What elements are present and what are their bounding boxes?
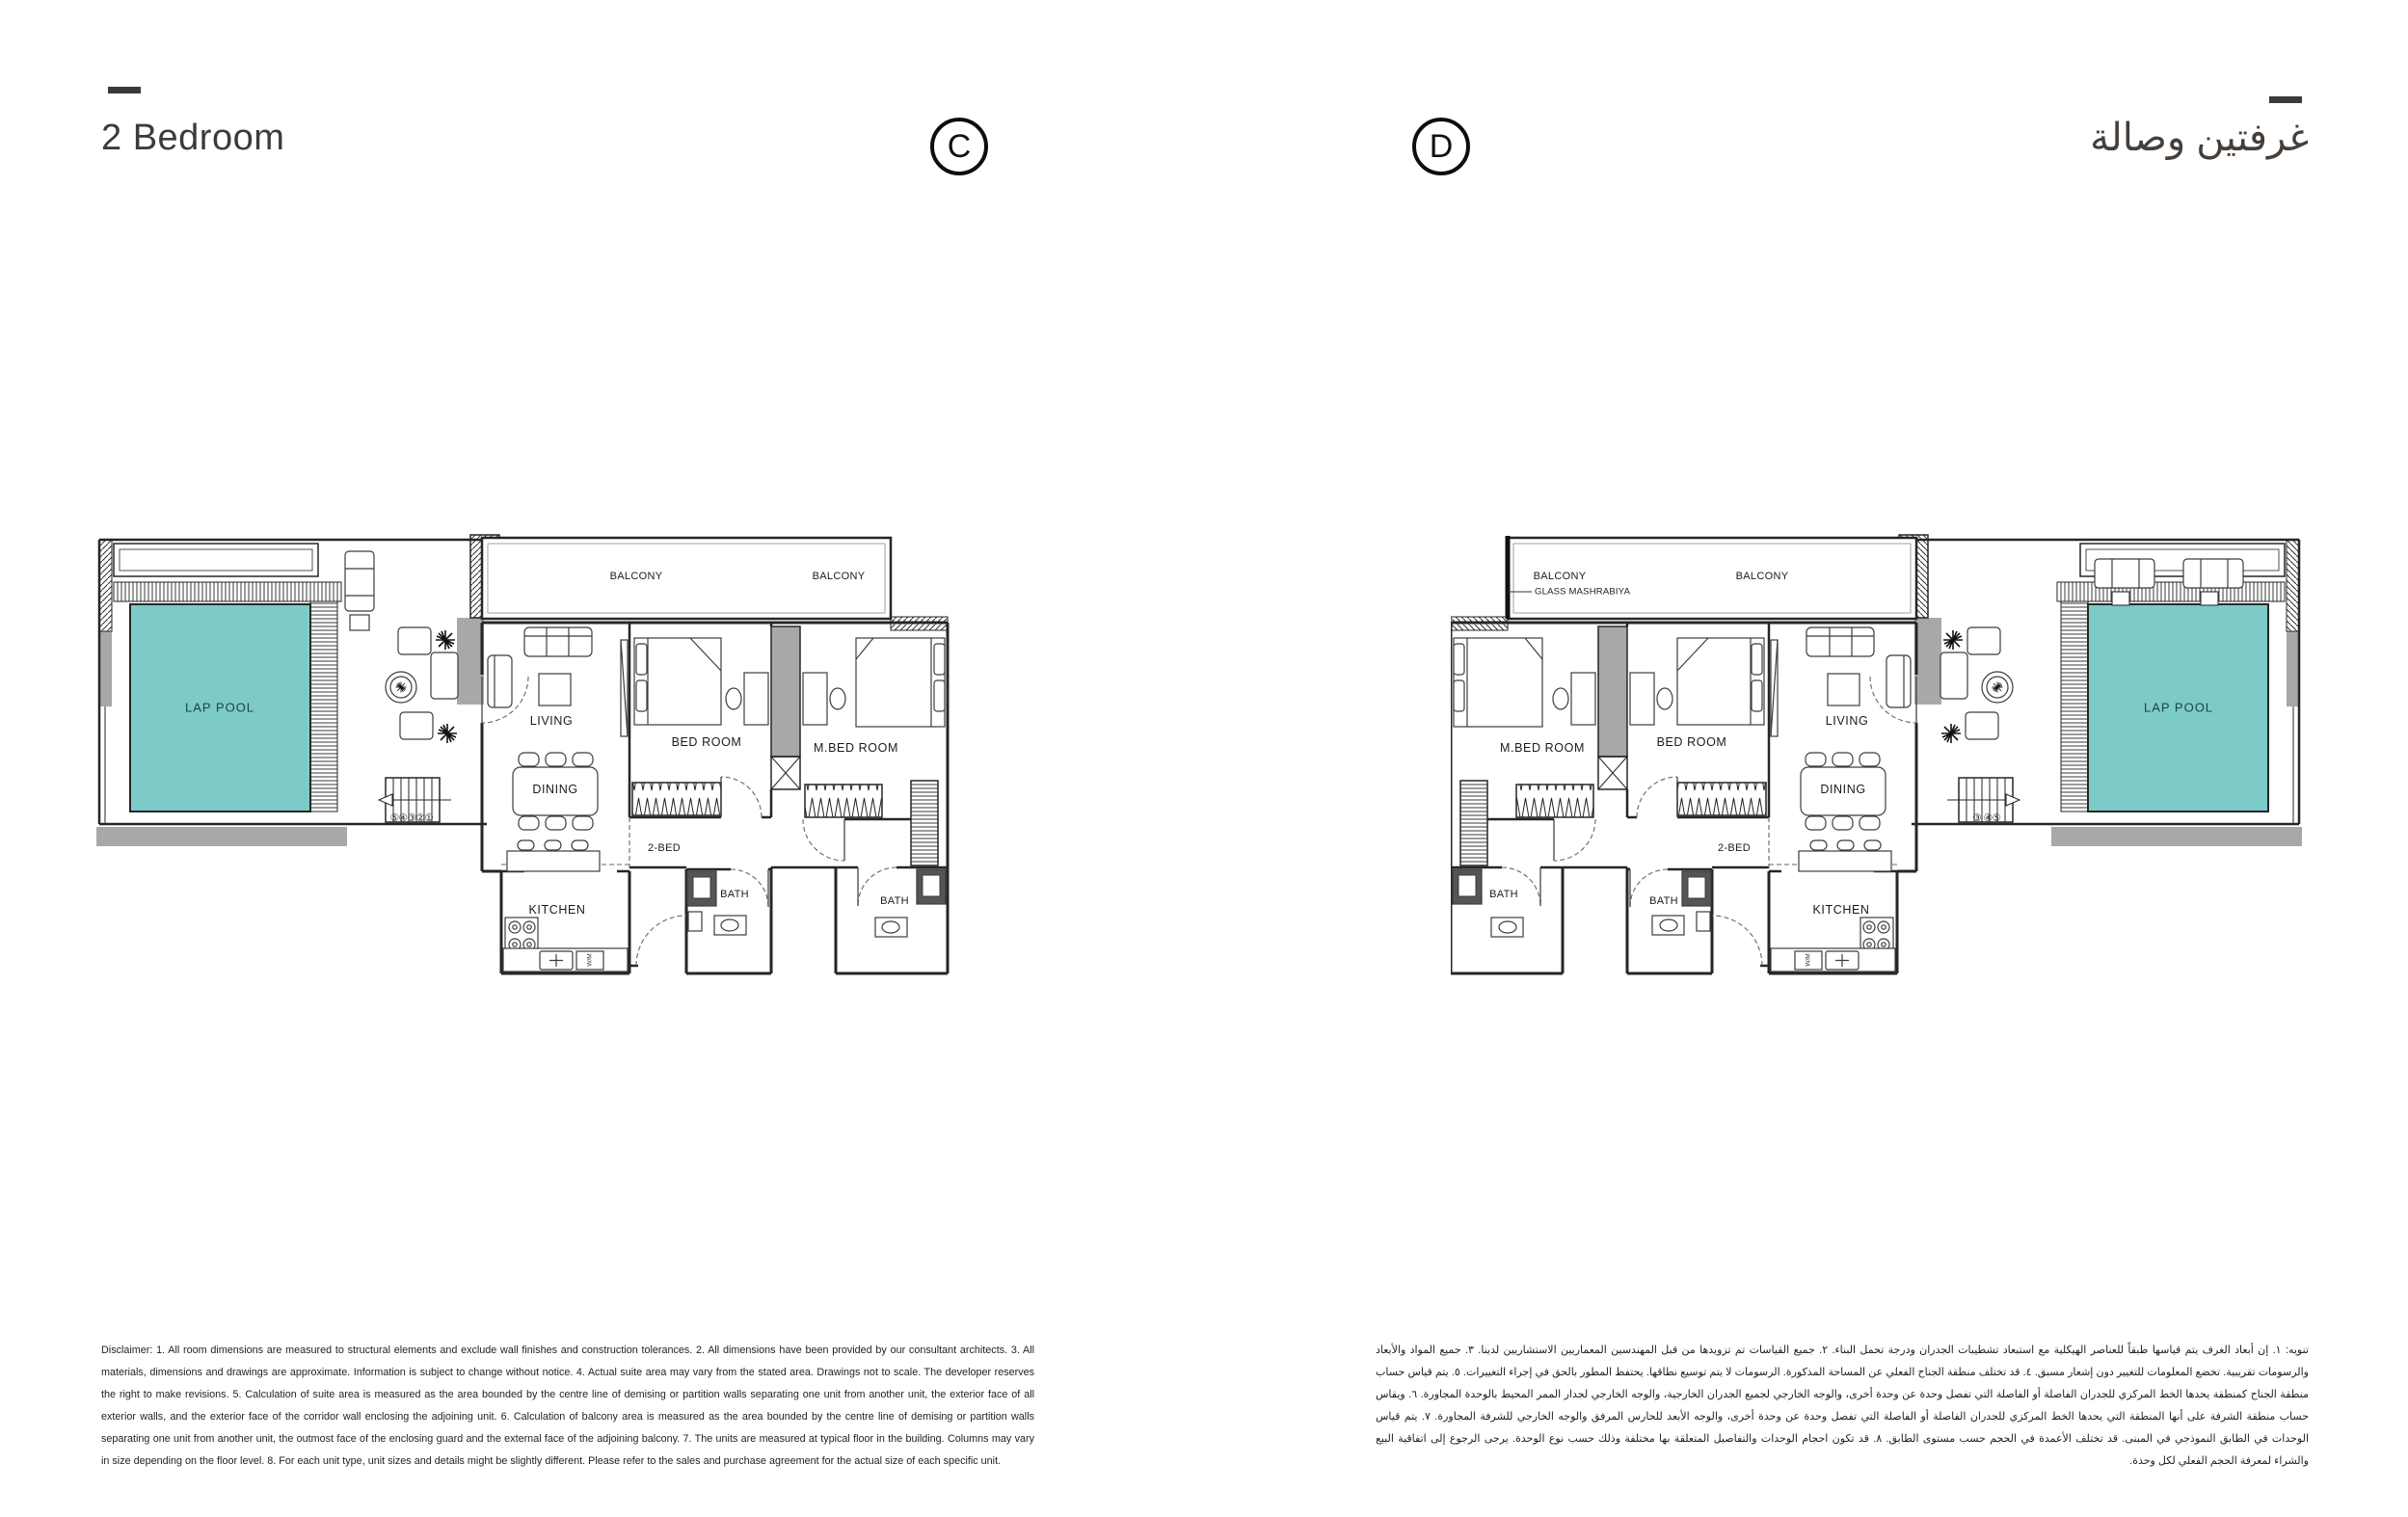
- label-balcony: BALCONY: [813, 571, 866, 582]
- lounge-chair-icon: [345, 551, 374, 630]
- label-bed-room: BED ROOM: [672, 735, 742, 749]
- label-kitchen: KITCHEN: [528, 903, 585, 917]
- label-washing-machine: W/M: [1806, 953, 1812, 966]
- label-stair-numbers: ⑤④③②①: [390, 812, 434, 824]
- page-title-arabic: غرفتين وصالة: [2090, 116, 2309, 160]
- label-washing-machine: W/M: [587, 953, 594, 966]
- title-dash-arabic: [2269, 96, 2302, 103]
- unit-d-drawing: [1451, 532, 2304, 977]
- label-lap-pool: LAP POOL: [2144, 701, 2213, 715]
- label-balcony: BALCONY: [1736, 571, 1789, 582]
- label-stair-numbers: ③ ④⑤: [1972, 812, 2000, 824]
- label-bath: BATH: [1649, 895, 1678, 907]
- label-balcony: BALCONY: [1534, 571, 1587, 582]
- label-bath: BATH: [880, 895, 909, 907]
- label-living: LIVING: [1826, 714, 1869, 728]
- page-title: 2 Bedroom: [101, 118, 284, 159]
- disclaimer-arabic: تنويه: ١. إن أبعاد الغرف يتم قياسها طبقا…: [1376, 1340, 2309, 1473]
- unit-badge-d: D: [1412, 118, 1470, 175]
- label-living: LIVING: [530, 714, 574, 728]
- label-balcony: BALCONY: [610, 571, 663, 582]
- label-bed-room: BED ROOM: [1657, 735, 1727, 749]
- label-2-bed: 2-BED: [648, 842, 681, 854]
- label-m-bed-room: M.BED ROOM: [1500, 741, 1585, 755]
- unit-badge-c: C: [930, 118, 988, 175]
- label-bath: BATH: [720, 889, 749, 900]
- label-bath: BATH: [1489, 889, 1518, 900]
- label-kitchen: KITCHEN: [1812, 903, 1869, 917]
- unit-d-floor-plan: LAP POOL BALCONY BALCONY GLASS MASHRABIY…: [1451, 532, 2304, 977]
- unit-c-drawing: [96, 532, 950, 977]
- floor-plan-sheet: 2 Bedroom C D غرفتين وصالة LAP POOL BALC…: [0, 0, 2408, 1517]
- label-2-bed: 2-BED: [1718, 842, 1751, 854]
- unit-c-floor-plan: LAP POOL BALCONY BALCONY LIVING DINING B…: [96, 532, 950, 977]
- label-lap-pool: LAP POOL: [185, 701, 254, 715]
- disclaimer-english: Disclaimer: 1. All room dimensions are m…: [101, 1340, 1034, 1473]
- label-dining: DINING: [532, 783, 577, 796]
- title-dash: [108, 87, 141, 93]
- label-dining: DINING: [1820, 783, 1865, 796]
- label-m-bed-room: M.BED ROOM: [814, 741, 898, 755]
- label-glass-mashrabiya: GLASS MASHRABIYA: [1535, 587, 1630, 598]
